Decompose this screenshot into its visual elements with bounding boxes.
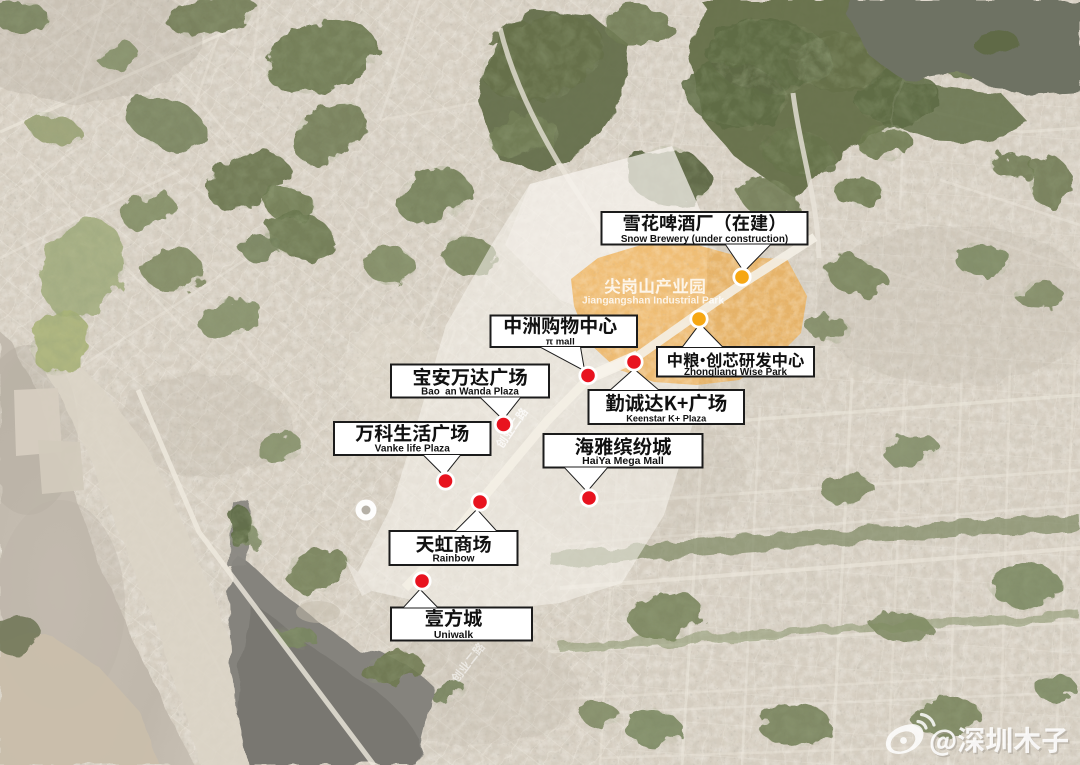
svg-text:Uniwalk: Uniwalk: [434, 630, 473, 641]
svg-text:Zhongliang Wise Park: Zhongliang Wise Park: [684, 367, 788, 378]
svg-text:HaiYa Mega Mall: HaiYa Mega Mall: [582, 455, 664, 467]
svg-text:Snow Brewery (under constructi: Snow Brewery (under construction): [621, 234, 788, 245]
svg-text:π mall: π mall: [546, 337, 575, 348]
svg-text:Bao an Wanda Plaza: Bao an Wanda Plaza: [421, 387, 519, 398]
svg-text:Keenstar K+ Plaza: Keenstar K+ Plaza: [626, 414, 707, 424]
svg-text:Rainbow: Rainbow: [432, 554, 474, 565]
svg-text:Vanke life Plaza: Vanke life Plaza: [375, 444, 451, 455]
svg-text:Jiangangshan Industrial Park: Jiangangshan Industrial Park: [582, 296, 724, 307]
